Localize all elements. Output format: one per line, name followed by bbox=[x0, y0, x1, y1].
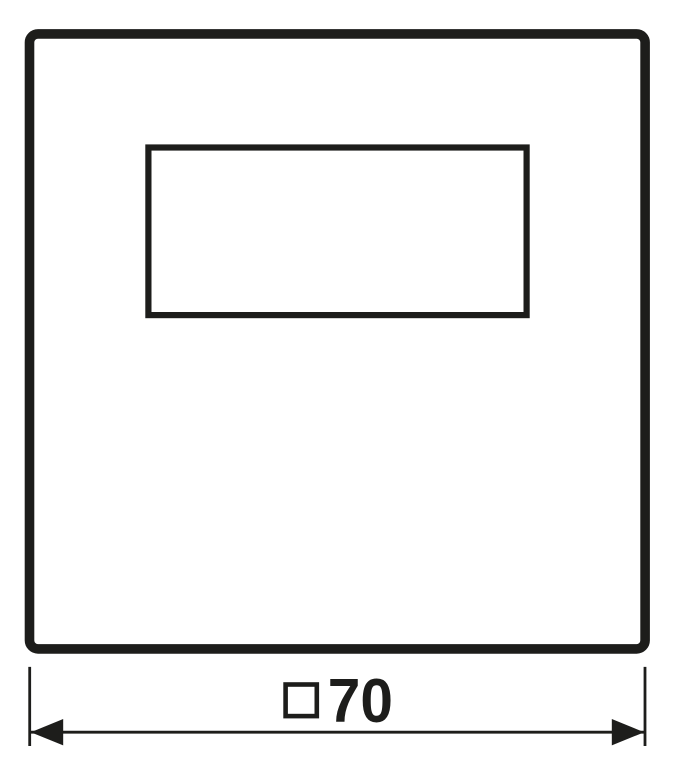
svg-text:70: 70 bbox=[328, 665, 393, 735]
